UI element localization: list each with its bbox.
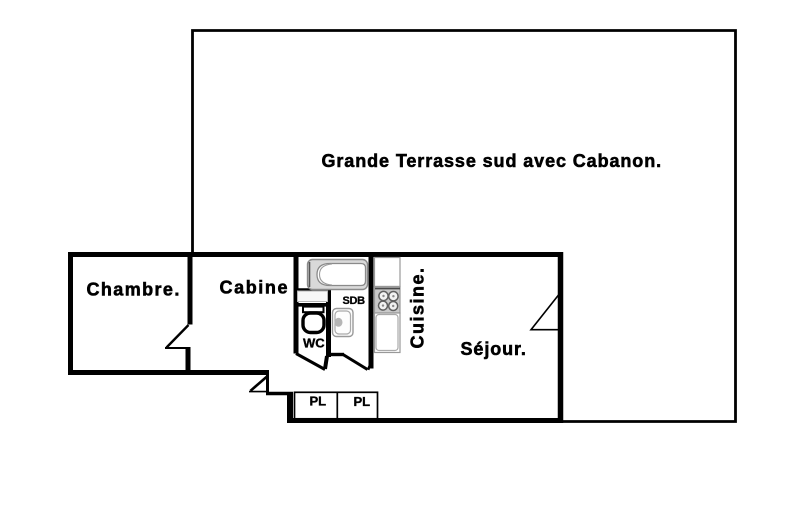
svg-text:PL: PL xyxy=(310,393,327,408)
svg-text:Chambre.: Chambre. xyxy=(87,279,181,299)
svg-text:Cabine: Cabine xyxy=(220,278,290,298)
svg-text:PL: PL xyxy=(354,394,371,409)
svg-text:WC: WC xyxy=(303,336,325,351)
svg-text:Grande Terrasse sud avec Caban: Grande Terrasse sud avec Cabanon. xyxy=(322,151,663,171)
svg-text:Cuisine.: Cuisine. xyxy=(408,266,428,348)
svg-text:Séjour.: Séjour. xyxy=(461,339,527,359)
svg-text:SDB: SDB xyxy=(343,295,366,307)
